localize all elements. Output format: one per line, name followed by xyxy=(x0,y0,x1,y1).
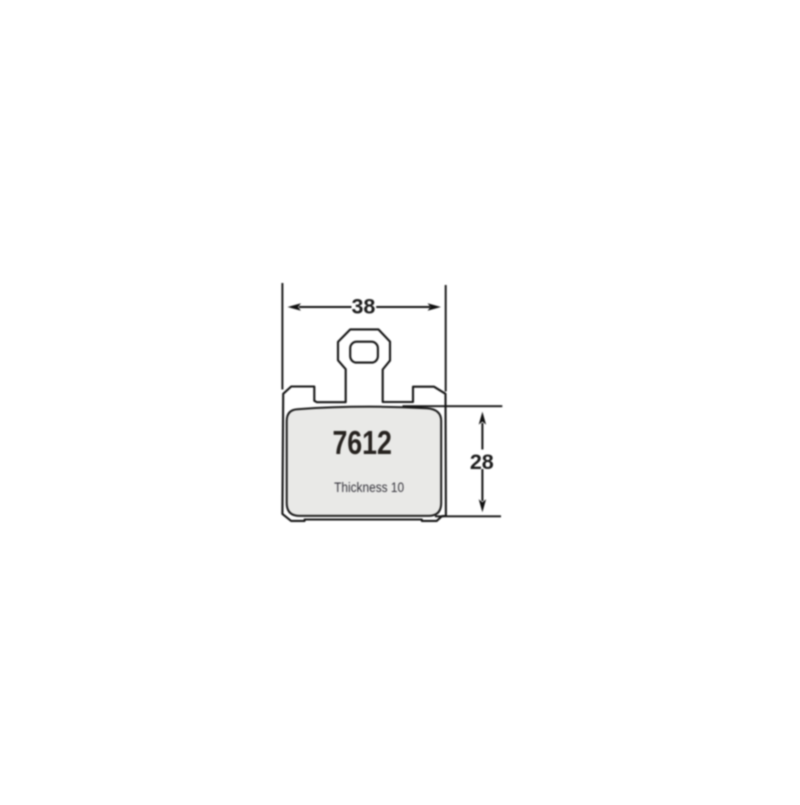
svg-text:7612: 7612 xyxy=(332,425,392,462)
svg-text:38: 38 xyxy=(351,295,375,319)
svg-text:28: 28 xyxy=(470,450,494,474)
svg-text:Thickness 10: Thickness 10 xyxy=(334,479,404,495)
